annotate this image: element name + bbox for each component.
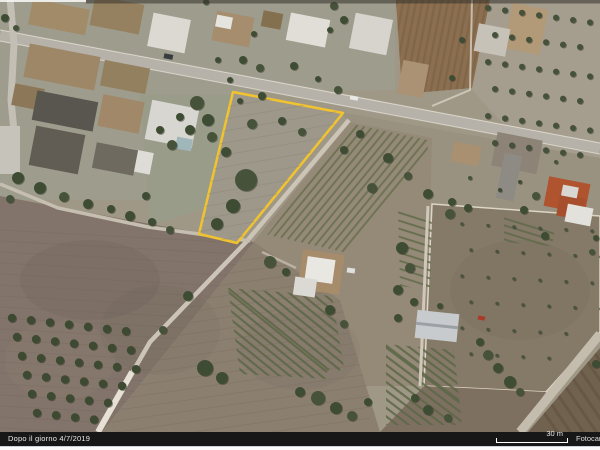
image-seam bbox=[0, 0, 600, 4]
side-street bbox=[10, 0, 15, 142]
history-date-label: Dopo il giorno 4/7/2019 bbox=[8, 432, 90, 446]
status-bar: Dopo il giorno 4/7/2019 30 m Fotocame bbox=[0, 432, 600, 446]
window-bottom-edge bbox=[0, 446, 600, 450]
scale-line bbox=[496, 438, 568, 443]
app-window: Dopo il giorno 4/7/2019 30 m Fotocame bbox=[0, 0, 600, 450]
scale-label: 30 m bbox=[546, 430, 563, 438]
white-roof-building bbox=[349, 13, 393, 56]
scale-bar: 30 m bbox=[496, 433, 568, 444]
satellite-map[interactable] bbox=[0, 0, 600, 432]
map-area[interactable] bbox=[0, 0, 600, 432]
white-roof-building bbox=[147, 13, 191, 54]
watermark-label: Fotocame bbox=[576, 432, 600, 446]
